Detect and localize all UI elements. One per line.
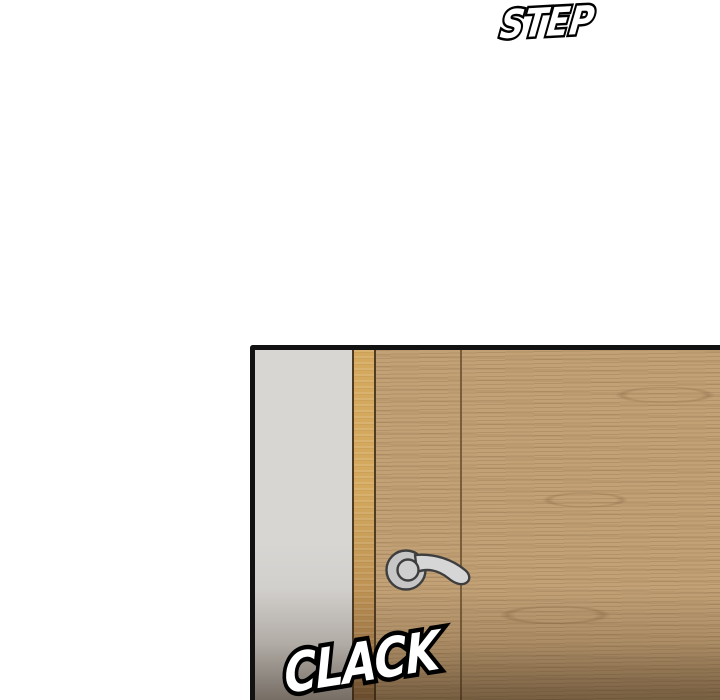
door-seam — [460, 350, 462, 700]
door-handle-collar — [398, 560, 419, 581]
comic-panel: CLACK — [250, 345, 720, 700]
sfx-text-step: STEP — [498, 1, 596, 45]
comic-page: STEP CLACK — [0, 0, 720, 700]
door-handle — [375, 530, 485, 610]
